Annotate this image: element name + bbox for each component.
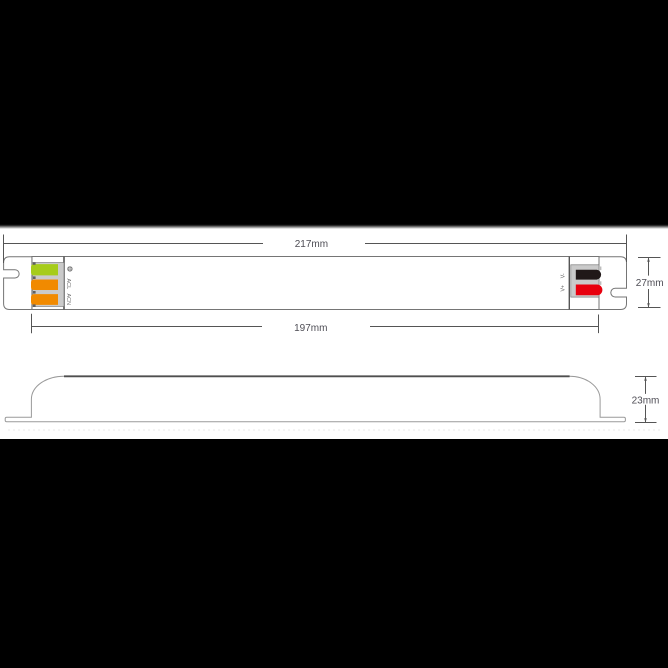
svg-text:V+: V+ [561, 285, 567, 292]
svg-text:ACN: ACN [65, 293, 71, 305]
svg-text:23mm: 23mm [632, 396, 660, 407]
svg-text:197mm: 197mm [294, 323, 327, 334]
svg-text:V-: V- [560, 273, 566, 278]
svg-text:27mm: 27mm [636, 278, 664, 289]
svg-text:ACL: ACL [65, 278, 71, 289]
svg-text:217mm: 217mm [295, 239, 328, 250]
